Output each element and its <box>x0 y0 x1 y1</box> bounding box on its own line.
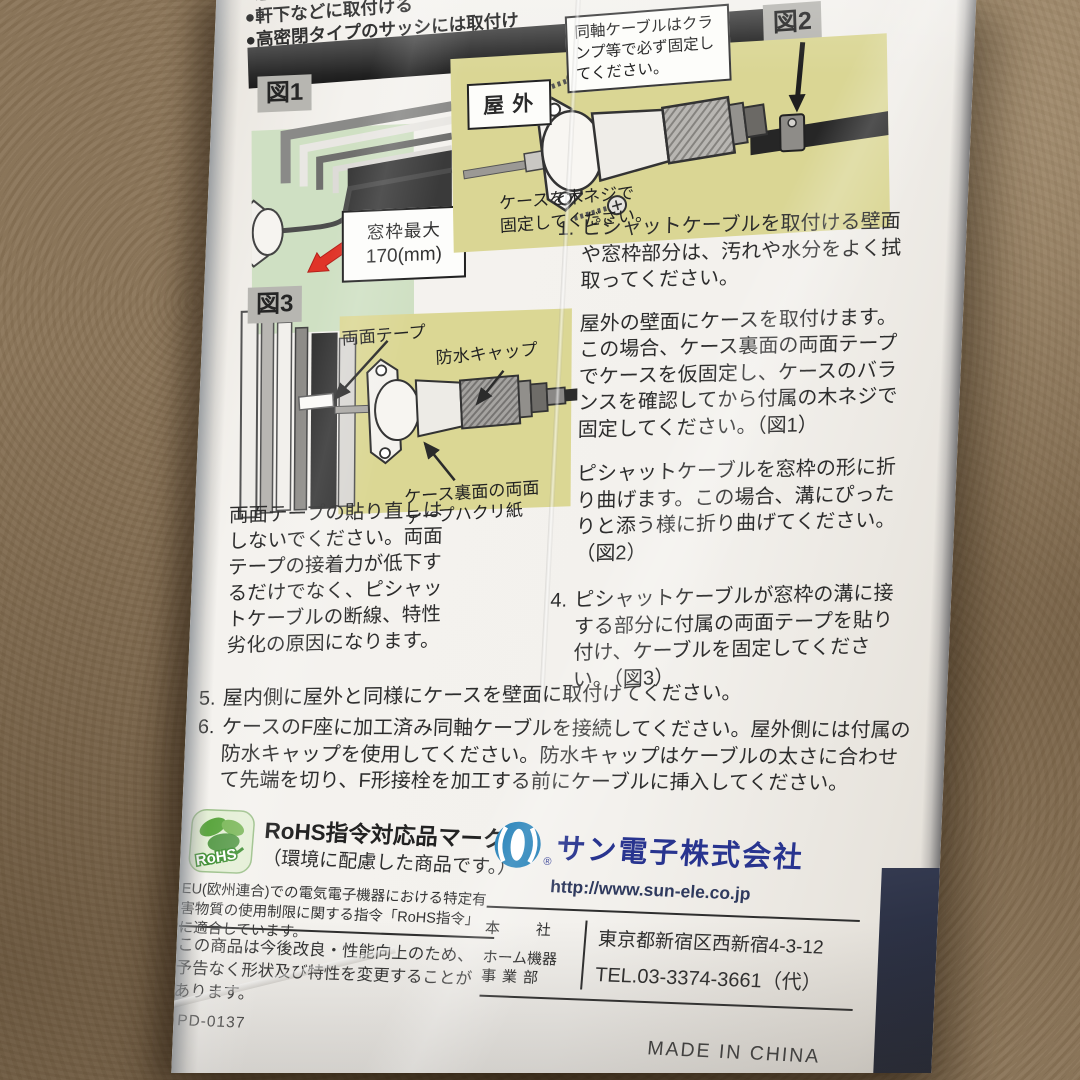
sun-electronics-logo-icon <box>490 818 546 872</box>
step-text: ケースのF座に加工済み同軸ケーブルを接続してください。屋外側には付属の防水キャッ… <box>219 714 917 797</box>
step-5: 5. 屋内側に屋外と同様にケースを壁面に取付けてください。 <box>199 678 912 712</box>
home-division-label: ホーム機器 事業部 <box>480 948 579 990</box>
photo-scene: ● ●窓の開閉 ●軒下などに取付ける ●高密閉タイプのサッシには取付け 取付方法… <box>0 0 1080 1080</box>
phone-text: TEL.03-3374-3661（代） <box>594 958 856 997</box>
step-number: 4. <box>549 587 575 694</box>
step-text: 屋内側に屋外と同様にケースを壁面に取付けてください。 <box>223 678 912 712</box>
office-address: 東京都新宿区西新宿4-3-12 TEL.03-3374-3661（代） <box>594 924 858 997</box>
table-divider <box>580 921 588 990</box>
step-4: 4. ピシャットケーブルが窓枠の溝に接する部分に付属の両面テープを貼り付け、ケー… <box>549 580 901 694</box>
tape-warning-text: 両面テープの貼り直しはしないでください。両面テープの接着力が低下するだけでなく、… <box>227 497 450 659</box>
product-package-back-panel: ● ●窓の開閉 ●軒下などに取付ける ●高密閉タイプのサッシには取付け 取付方法… <box>171 0 976 1073</box>
fig1-label: 図1 <box>257 74 311 112</box>
address-text: 東京都新宿区西新宿4-3-12 <box>597 924 859 961</box>
step-text: ピシャットケーブルを窓枠の形に折り曲げます。この場合、溝にぴったりと添う様に折り… <box>575 454 903 567</box>
box-side-panel <box>873 868 940 1073</box>
head-office-label: 本 社 <box>484 917 581 942</box>
office-labels: 本 社 ホーム機器 事業部 <box>480 917 581 990</box>
step-2: 2. 屋外の壁面にケースを取付けます。この場合、ケース裏面の両面テープでケースを… <box>553 304 906 444</box>
outdoor-label: 屋外 <box>467 79 552 130</box>
company-address-table: 本 社 ホーム機器 事業部 東京都新宿区西新宿4-3-12 TEL.03-337… <box>479 906 859 1011</box>
made-in-label: MADE IN CHINA <box>646 1037 821 1068</box>
note-line1: 窓枠最大 <box>344 215 464 245</box>
footer-block: RoHS RoHS指令対応品マーク （環境に配慮した商品です。） EU(欧州連合… <box>171 808 918 1073</box>
note-line2: 170(mm) <box>344 242 464 269</box>
step-3: 3. ピシャットケーブルを窓枠の形に折り曲げます。この場合、溝にぴったりと添う様… <box>551 454 903 568</box>
company-name: サン電子株式会社 <box>555 825 806 876</box>
product-change-notice: この商品は今後改良・性能向上のため、予告なく形状及び特性を変更することがあります… <box>173 934 480 1015</box>
max-frame-width-note: 窓枠最大 170(mm) <box>342 205 466 282</box>
fig3-label: 図3 <box>248 286 302 324</box>
instruction-steps-1-4: 1. ピシャットケーブルを取付ける壁面や窓枠部分は、汚れや水分をよく拭取ってくだ… <box>549 208 908 694</box>
step-6: 6. ケースのF座に加工済み同軸ケーブルを接続してください。屋外側には付属の防水… <box>195 714 917 797</box>
step-text: ピシャットケーブルが窓枠の溝に接する部分に付属の両面テープを貼り付け、ケーブルを… <box>573 580 901 693</box>
registered-mark: ® <box>543 856 552 868</box>
step-text: 屋外の壁面にケースを取付けます。この場合、ケース裏面の両面テープでケースを仮固定… <box>577 304 906 444</box>
clamp-callout: 同軸ケーブルはクランプ等で必ず固定してください。 <box>565 4 732 94</box>
company-url: http://www.sun-ele.co.jp <box>549 876 751 905</box>
company-logo-row: ® サン電子株式会社 <box>490 818 807 882</box>
